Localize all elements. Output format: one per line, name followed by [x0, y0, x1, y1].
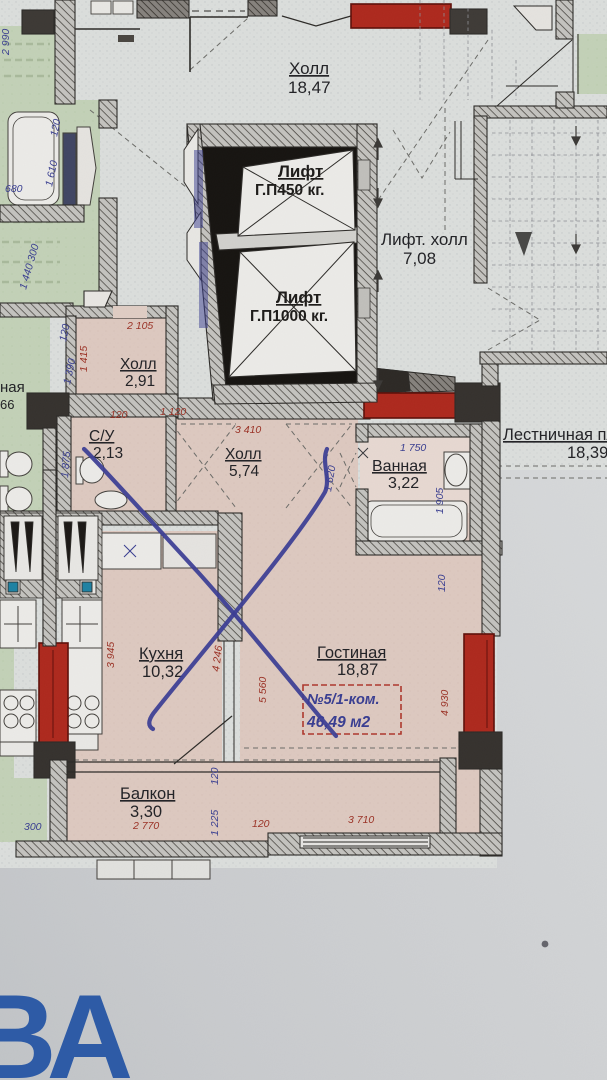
svg-text:ВА: ВА — [0, 970, 131, 1080]
